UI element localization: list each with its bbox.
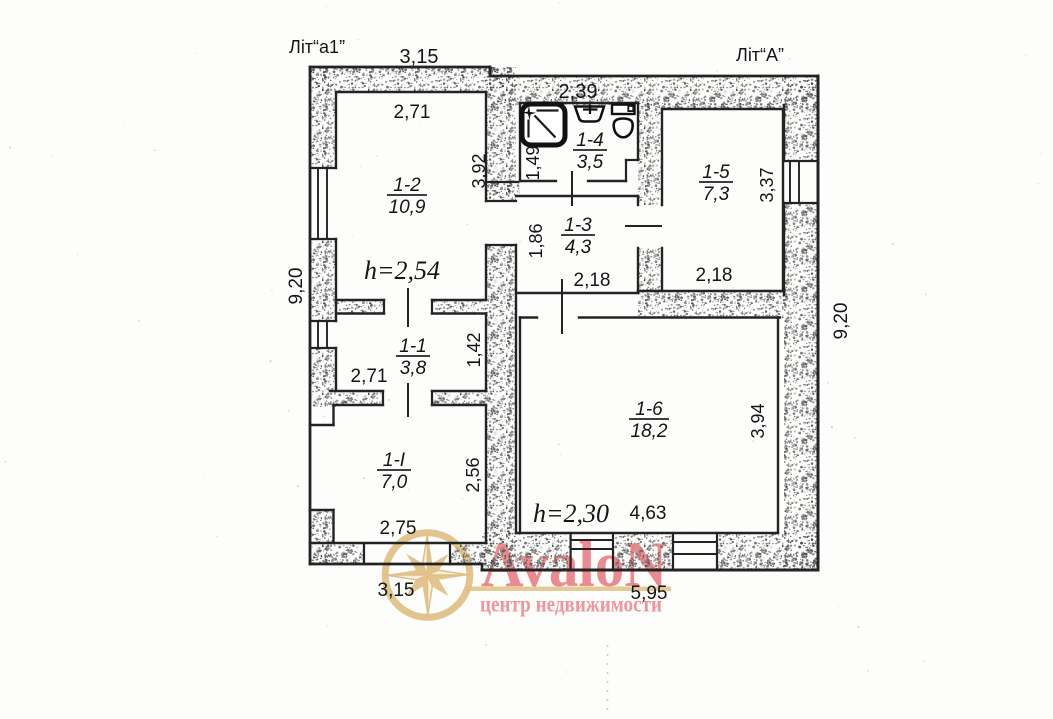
svg-text:2,18: 2,18 [574,270,611,291]
svg-text:2,75: 2,75 [380,518,417,539]
svg-text:3,5: 3,5 [577,152,604,173]
svg-text:1-6: 1-6 [635,399,663,420]
svg-text:1-I: 1-I [383,450,406,471]
svg-text:5,95: 5,95 [631,583,668,604]
svg-text:9,20: 9,20 [831,303,852,340]
svg-text:1,49: 1,49 [523,145,543,180]
svg-text:2,39: 2,39 [559,81,598,103]
svg-text:10,9: 10,9 [389,197,426,218]
svg-text:Літ“а1”: Літ“а1” [289,37,345,57]
svg-text:1-3: 1-3 [564,215,592,236]
svg-text:4,63: 4,63 [630,503,667,524]
svg-text:2,71: 2,71 [351,366,388,387]
svg-text:1,86: 1,86 [526,223,546,258]
svg-text:4,3: 4,3 [565,237,592,258]
svg-text:Літ“А”: Літ“А” [736,45,784,65]
svg-text:3,94: 3,94 [748,403,768,438]
svg-text:3,37: 3,37 [757,167,777,202]
svg-text:9,20: 9,20 [286,268,307,305]
svg-text:7,3: 7,3 [703,184,730,205]
svg-text:18,2: 18,2 [631,421,668,442]
svg-text:7,0: 7,0 [381,472,408,493]
svg-text:1,42: 1,42 [464,332,484,367]
svg-text:1-2: 1-2 [393,175,421,196]
svg-text:1-1: 1-1 [399,336,426,357]
svg-text:3,8: 3,8 [400,358,427,379]
svg-text:2,18: 2,18 [696,265,733,286]
svg-text:h=2,30: h=2,30 [533,499,609,528]
svg-text:1-5: 1-5 [702,162,730,183]
svg-text:3,92: 3,92 [469,153,489,188]
svg-text:1-4: 1-4 [576,130,603,151]
svg-text:2,71: 2,71 [394,102,431,123]
svg-text:3,15: 3,15 [378,580,415,601]
svg-text:2,56: 2,56 [463,457,483,492]
svg-text:h=2,54: h=2,54 [364,256,440,285]
svg-text:3,15: 3,15 [400,46,439,68]
